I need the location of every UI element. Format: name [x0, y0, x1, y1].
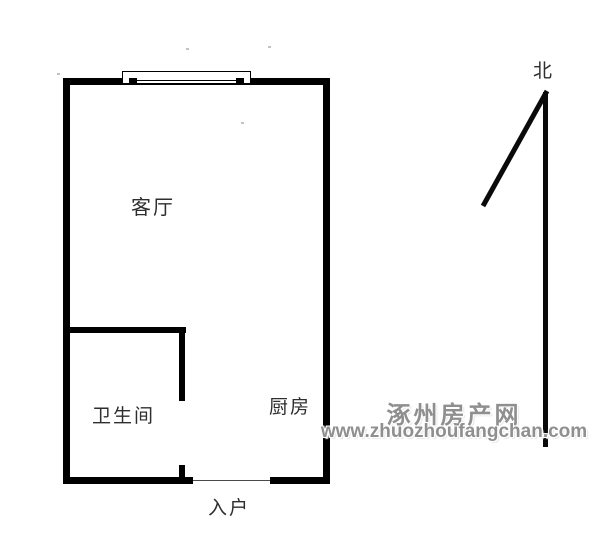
window-pane-left [129, 78, 137, 84]
entrance-threshold-line [193, 480, 270, 481]
window-symbol [122, 71, 251, 84]
entrance-label: 入户 [208, 493, 250, 520]
noise-speck [186, 48, 189, 50]
bathroom-wall-right [179, 327, 185, 401]
north-label: 北 [533, 56, 554, 83]
floorplan-image: 客厅 卫生间 厨房 入户 北 涿州房产网 www.zhuozhoufangcha… [0, 0, 604, 538]
kitchen-label: 厨房 [269, 392, 311, 419]
bathroom-wall-top [63, 327, 186, 333]
noise-speck [268, 46, 271, 48]
bathroom-door-jamb [179, 465, 185, 484]
wall-bottom-right-segment [270, 477, 330, 484]
window-midline [132, 80, 241, 81]
window-pane-right [236, 78, 244, 84]
noise-speck [241, 122, 244, 124]
living-room-label: 客厅 [131, 191, 175, 220]
wall-left [63, 78, 70, 484]
noise-speck [57, 73, 60, 75]
bathroom-label: 卫生间 [92, 401, 155, 428]
watermark-site-url: www.zhuozhoufangchan.com [306, 421, 602, 443]
wall-bottom-left-segment [63, 477, 193, 484]
north-arrow-slash [483, 91, 547, 206]
